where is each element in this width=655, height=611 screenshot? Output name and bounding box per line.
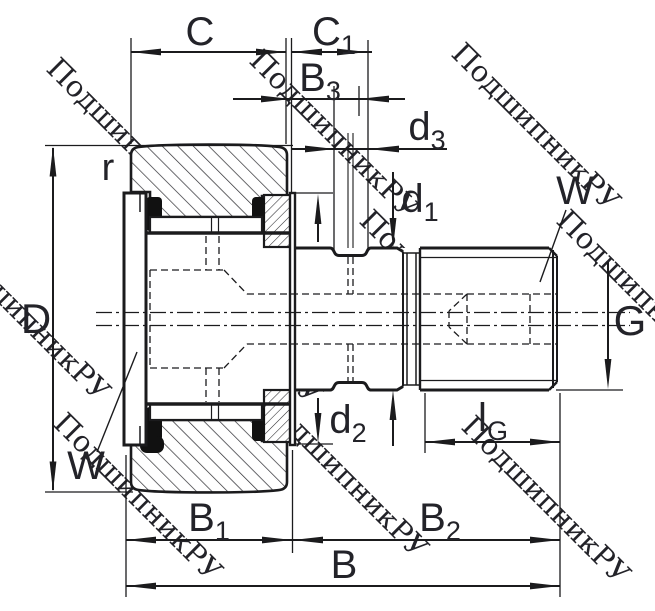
dimension-B2: B2 (293, 496, 561, 546)
dimension-lG: lG (425, 396, 560, 446)
dimension-label-B1: B1 (188, 496, 230, 546)
technical-drawing-canvas: ПодшипникРУ ПодшипникРУ ПодшипникРУ Подш… (0, 0, 655, 611)
cam-follower-bearing-drawing: ПодшипникРУ ПодшипникРУ ПодшипникРУ Подш… (0, 0, 655, 611)
needle-rollers-top (150, 217, 262, 233)
dimension-label-W-top: W (556, 169, 594, 213)
watermark-text: ПодшипникРУ (445, 36, 627, 218)
dimension-label-G: G (614, 297, 647, 344)
dimension-D: D (21, 147, 57, 492)
stud-collar-top (264, 195, 292, 247)
needle-rollers-bottom (150, 404, 262, 420)
dimension-label-C1: C1 (312, 10, 356, 60)
dimension-label-W-bottom: W (67, 444, 105, 488)
right-washer (290, 193, 295, 445)
dimension-label-B2: B2 (419, 496, 461, 546)
flange-washer (124, 193, 146, 445)
thread-body (420, 248, 557, 390)
dimension-label-d3: d3 (408, 105, 445, 155)
stud-collar-bottom (264, 390, 292, 442)
dimension-label-d2: d2 (329, 398, 366, 448)
dimension-label-B: B (331, 543, 358, 587)
dimension-label-B3: B3 (299, 56, 341, 106)
dimension-label-D: D (21, 295, 51, 342)
stud-shaft (295, 248, 420, 390)
dimension-C1: C1 (292, 10, 373, 60)
dimension-label-r: r (102, 147, 115, 189)
stud-body (146, 233, 295, 404)
watermark-text: ПодшипникРУ (550, 203, 655, 385)
watermark-text: ПодшипникРУ (0, 226, 117, 408)
dimension-label-lG: lG (478, 396, 508, 446)
dimension-label-d1: d1 (401, 177, 438, 227)
dimension-label-C: C (186, 10, 215, 54)
